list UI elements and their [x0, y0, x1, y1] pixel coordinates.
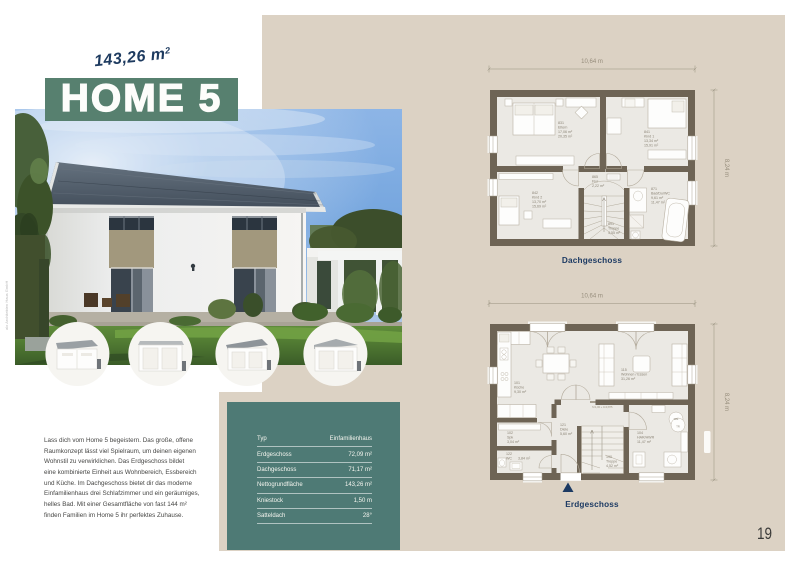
- svg-text:8,24 m: 8,24 m: [723, 393, 729, 411]
- svg-text:9,30 m²: 9,30 m²: [514, 390, 527, 394]
- svg-text:2,22 m²: 2,22 m²: [592, 184, 605, 188]
- svg-text:TR: TR: [676, 425, 680, 429]
- svg-text:Wohnen / Essen: Wohnen / Essen: [621, 373, 647, 377]
- svg-text:Spk: Spk: [507, 436, 513, 440]
- svg-text:Dachgeschoss: Dachgeschoss: [562, 256, 622, 265]
- svg-text:3,84 m²: 3,84 m²: [518, 457, 531, 461]
- svg-text:831: 831: [558, 121, 564, 125]
- svg-text:104: 104: [637, 431, 643, 435]
- svg-text:871: 871: [651, 187, 657, 191]
- svg-text:Treppe: Treppe: [608, 227, 619, 231]
- svg-text:Küche: Küche: [514, 386, 524, 390]
- svg-text:3,04 m²: 3,04 m²: [507, 440, 520, 444]
- svg-text:h=1,00 + 4×0,875: h=1,00 + 4×0,875: [592, 405, 613, 409]
- svg-text:841: 841: [644, 130, 650, 134]
- svg-text:15,91 m²: 15,91 m²: [644, 144, 659, 148]
- svg-text:WC: WC: [506, 457, 512, 461]
- svg-text:Erdgeschoss: Erdgeschoss: [565, 500, 619, 509]
- svg-text:121: 121: [560, 423, 566, 427]
- svg-text:17,06 m²: 17,06 m²: [558, 130, 573, 134]
- svg-text:102: 102: [507, 431, 513, 435]
- svg-text:865: 865: [592, 175, 598, 179]
- svg-text:Treppe: Treppe: [606, 460, 617, 464]
- svg-text:101: 101: [514, 381, 520, 385]
- svg-text:190: 190: [606, 455, 612, 459]
- svg-text:11,47 m²: 11,47 m²: [637, 440, 652, 444]
- svg-text:122: 122: [506, 452, 512, 456]
- svg-text:4,52 m²: 4,52 m²: [606, 464, 619, 468]
- svg-text:11,47 m²: 11,47 m²: [651, 201, 666, 205]
- svg-text:891: 891: [608, 222, 614, 226]
- svg-text:15,69 m²: 15,69 m²: [532, 205, 547, 209]
- svg-text:31,26 m²: 31,26 m²: [621, 377, 636, 381]
- svg-text:Eltern: Eltern: [558, 126, 567, 130]
- svg-text:Kind 2: Kind 2: [532, 196, 542, 200]
- svg-text:4,55 m²: 4,55 m²: [608, 231, 621, 235]
- svg-text:115: 115: [621, 368, 627, 372]
- svg-text:13,70 m²: 13,70 m²: [532, 200, 547, 204]
- svg-text:13,34 m²: 13,34 m²: [644, 139, 659, 143]
- svg-text:10,64 m: 10,64 m: [581, 294, 603, 300]
- svg-text:5,60 m²: 5,60 m²: [560, 432, 573, 436]
- svg-text:20,35 m²: 20,35 m²: [558, 135, 573, 139]
- svg-text:HAR/HWR: HAR/HWR: [637, 436, 655, 440]
- svg-text:8,24 m: 8,24 m: [723, 159, 729, 177]
- svg-text:Bad/Du/WC: Bad/Du/WC: [651, 192, 670, 196]
- svg-text:9,61 m²: 9,61 m²: [651, 196, 664, 200]
- svg-text:WM: WM: [674, 417, 679, 421]
- svg-text:842: 842: [532, 191, 538, 195]
- svg-text:10,64 m: 10,64 m: [581, 59, 603, 65]
- svg-text:Diele: Diele: [560, 428, 568, 432]
- svg-text:Kind 1: Kind 1: [644, 135, 654, 139]
